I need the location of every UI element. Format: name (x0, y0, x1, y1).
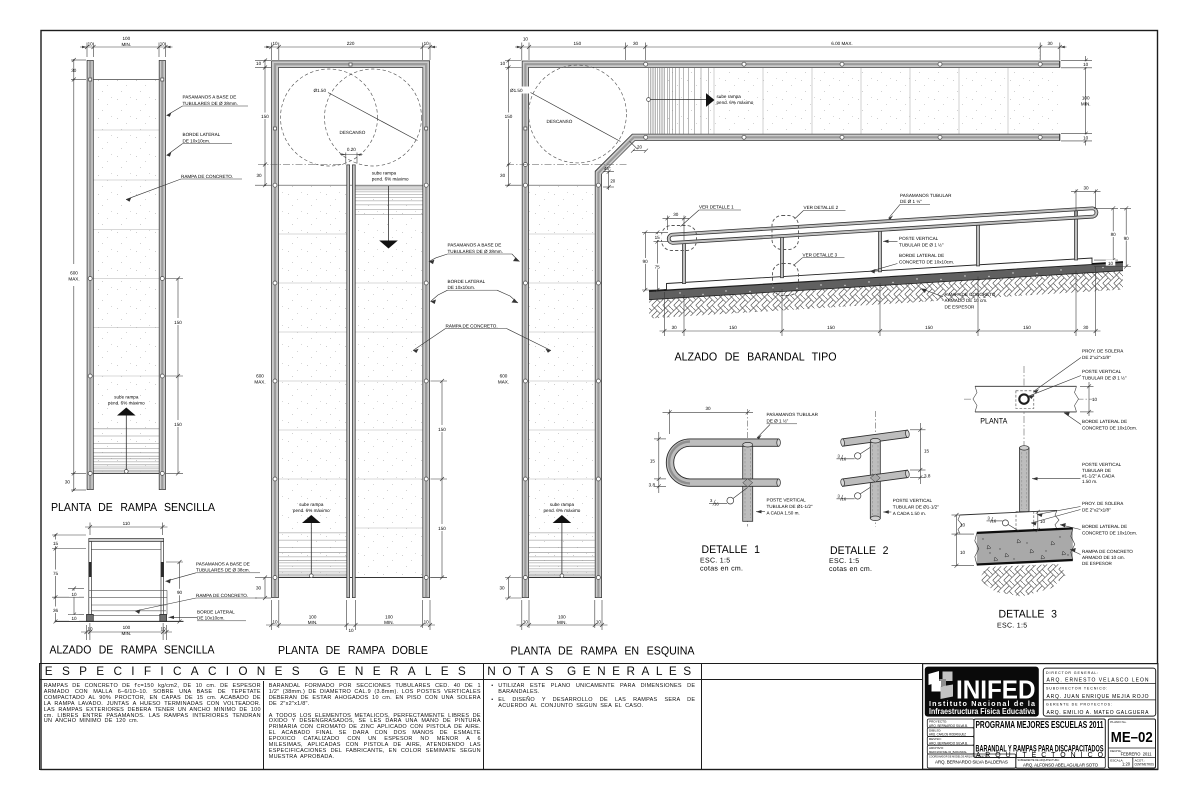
svg-text:10: 10 (71, 592, 77, 597)
svg-text:PASAMANOS A BASE DE: PASAMANOS A BASE DE (196, 561, 250, 566)
svg-text:CONCRETO DE 10x10cm.: CONCRETO DE 10x10cm. (899, 259, 954, 264)
svg-text:75: 75 (655, 265, 661, 270)
svg-text:10: 10 (71, 616, 77, 621)
svg-text:MIN.: MIN. (308, 620, 318, 625)
svg-text:150: 150 (438, 526, 446, 531)
svg-text:RAMPA DE CONCRETO: RAMPA DE CONCRETO (945, 292, 996, 297)
svg-text:MAX.: MAX. (254, 380, 265, 385)
svg-text:45°: 45° (604, 166, 611, 171)
svg-text:Ø1.50: Ø1.50 (314, 88, 327, 93)
svg-text:DESCANSO: DESCANSO (340, 130, 366, 135)
svg-text:10: 10 (523, 619, 529, 624)
svg-text:150: 150 (1023, 325, 1031, 330)
svg-text:MIN.: MIN. (122, 631, 132, 636)
svg-text:30: 30 (256, 585, 262, 590)
svg-text:220: 220 (347, 41, 355, 46)
svg-text:10: 10 (523, 37, 529, 42)
svg-text:TUBULAR DE Ø 1 ½": TUBULAR DE Ø 1 ½" (899, 243, 944, 248)
svg-text:1.50 m.: 1.50 m. (1082, 479, 1097, 484)
svg-text:10: 10 (424, 41, 430, 46)
svg-text:ARQ. JUAN ENRIQUE MEJIA ROJO: ARQ. JUAN ENRIQUE MEJIA ROJO (1046, 694, 1148, 700)
svg-text:ALZADO DE RAMPA SENCILLA: ALZADO DE RAMPA SENCILLA (50, 644, 215, 657)
svg-text:Infraestructura Física Educati: Infraestructura Física Educativa (929, 707, 1036, 716)
svg-text:CONCRETO DE 10x10cm.: CONCRETO DE 10x10cm. (1082, 425, 1137, 430)
svg-text:VER DETALLE 3: VER DETALLE 3 (803, 252, 838, 257)
svg-text:SUBDIRECTOR TECNICO:: SUBDIRECTOR TECNICO: (1046, 686, 1108, 690)
svg-text:3.8: 3.8 (649, 483, 656, 488)
svg-text:90: 90 (1124, 236, 1130, 241)
svg-text:10: 10 (960, 523, 966, 528)
svg-text:1:20: 1:20 (1122, 761, 1131, 766)
svg-text:3: 3 (838, 493, 841, 498)
svg-text:POSTE VERTICAL: POSTE VERTICAL (893, 498, 933, 503)
svg-text:30: 30 (1083, 186, 1089, 191)
svg-text:TUBULAR DE Ø 1 ½": TUBULAR DE Ø 1 ½" (1082, 375, 1127, 380)
svg-text:TUBULARES DE Ø 38mm.: TUBULARES DE Ø 38mm. (448, 249, 503, 254)
svg-text:100: 100 (309, 614, 317, 619)
svg-text:DE Ø 1 ½": DE Ø 1 ½" (900, 199, 922, 204)
svg-text:sube rampa: sube rampa (550, 502, 575, 507)
svg-text:ARMADO DE 10 cm.: ARMADO DE 10 cm. (945, 298, 988, 303)
svg-text:DETALLE 1: DETALLE 1 (702, 544, 761, 556)
svg-text:BORDE LATERAL DE: BORDE LATERAL DE (1082, 524, 1127, 529)
svg-text:15: 15 (53, 541, 59, 546)
svg-text:30: 30 (1083, 325, 1089, 330)
svg-text:PLANO No.: PLANO No. (1110, 720, 1126, 724)
svg-text:30: 30 (672, 325, 678, 330)
svg-text:PLANTA DE RAMPA SENCILLA: PLANTA DE RAMPA SENCILLA (51, 501, 215, 514)
svg-text:pend. 6% máximo: pend. 6% máximo (108, 401, 145, 406)
svg-text:150: 150 (827, 325, 835, 330)
svg-text:BORDE LATERAL: BORDE LATERAL (183, 132, 221, 137)
svg-text:PLANTA: PLANTA (980, 416, 1008, 425)
svg-text:10: 10 (500, 61, 506, 66)
svg-text:10: 10 (256, 61, 262, 66)
svg-text:sube rampa: sube rampa (372, 171, 397, 176)
svg-text:sube rampa: sube rampa (299, 502, 324, 507)
svg-text:pend. 6% máximo: pend. 6% máximo (544, 508, 581, 513)
svg-text:MAX.: MAX. (68, 277, 79, 282)
svg-text:DESCANSO: DESCANSO (547, 119, 573, 124)
svg-text:10: 10 (272, 619, 278, 624)
svg-text:ME–02: ME–02 (1110, 730, 1152, 746)
svg-text:10: 10 (87, 627, 93, 632)
svg-text:RAMPA DE CONCRETO.: RAMPA DE CONCRETO. (196, 593, 248, 598)
svg-text:ARQ. BERNARDO SILVA BALDERAS: ARQ. BERNARDO SILVA BALDERAS (935, 760, 1008, 765)
svg-text:VER DETALLE 1: VER DETALLE 1 (699, 205, 734, 210)
svg-text:16: 16 (714, 501, 719, 506)
svg-text:90: 90 (177, 590, 183, 595)
svg-text:MEDC2011\ME-02_BARANDAL: MEDC2011\ME-02_BARANDAL (929, 750, 967, 754)
svg-text:GERENTE DE PROYECTOS:: GERENTE DE PROYECTOS: (1046, 703, 1113, 707)
svg-text:RAMPA DE CONCRETO.: RAMPA DE CONCRETO. (446, 323, 498, 328)
svg-text:150: 150 (174, 422, 182, 427)
svg-text:CENTIMETROS: CENTIMETROS (1134, 762, 1154, 767)
svg-text:30: 30 (705, 406, 711, 411)
svg-text:PASAMANOS TUBULAR: PASAMANOS TUBULAR (767, 412, 819, 417)
svg-text:10: 10 (1092, 397, 1098, 402)
svg-text:POSTE VERTICAL: POSTE VERTICAL (1082, 369, 1122, 374)
svg-text:DE Ø 1 ½": DE Ø 1 ½" (767, 419, 789, 424)
svg-text:150: 150 (505, 114, 513, 119)
svg-text:75: 75 (53, 571, 59, 576)
svg-text:DIRECTOR GENERAL:: DIRECTOR GENERAL: (1046, 671, 1099, 675)
svg-text:pend. 6% máximo: pend. 6% máximo (293, 508, 330, 513)
svg-text:3.8: 3.8 (924, 474, 931, 479)
svg-text:100: 100 (385, 614, 393, 619)
svg-text:150: 150 (438, 427, 446, 432)
svg-text:PROGRAMA MEJORES ESCUELAS 2011: PROGRAMA MEJORES ESCUELAS 2011 (975, 720, 1103, 731)
svg-text:6.00 MAX.: 6.00 MAX. (831, 41, 852, 46)
svg-text:30: 30 (500, 173, 506, 178)
svg-text:ARQ. CARLOS RODRIGUEZ: ARQ. CARLOS RODRIGUEZ (929, 733, 967, 737)
svg-text:sube rampa: sube rampa (717, 94, 742, 99)
svg-text:600: 600 (500, 374, 508, 379)
svg-text:pend. 6% máximo: pend. 6% máximo (372, 177, 409, 182)
svg-text:100: 100 (122, 36, 130, 41)
svg-text:Ø1.50: Ø1.50 (510, 88, 523, 93)
svg-text:ARQ. ERNESTO VELASCO LEON: ARQ. ERNESTO VELASCO LEON (1046, 678, 1148, 684)
svg-text:PROY. DE SOLERA: PROY. DE SOLERA (1082, 501, 1124, 506)
svg-text:PASAMANOS A BASE DE: PASAMANOS A BASE DE (183, 95, 237, 100)
svg-text:DETALLE 3: DETALLE 3 (999, 609, 1058, 621)
svg-text:600: 600 (256, 374, 264, 379)
svg-text:BORDE LATERAL DE: BORDE LATERAL DE (1082, 419, 1127, 424)
svg-text:TUBULAR DE Ø1-1/2": TUBULAR DE Ø1-1/2" (767, 504, 813, 509)
svg-text:PROY. DE SOLERA: PROY. DE SOLERA (1082, 349, 1124, 354)
svg-text:600: 600 (70, 271, 78, 276)
svg-text:30: 30 (1047, 41, 1053, 46)
svg-text:ESC. 1:5: ESC. 1:5 (700, 558, 730, 565)
svg-text:10: 10 (160, 627, 166, 632)
svg-text:3: 3 (710, 498, 713, 503)
svg-text:30: 30 (499, 585, 505, 590)
svg-text:80: 80 (1111, 232, 1117, 237)
svg-text:A CADA 1.50 m.: A CADA 1.50 m. (767, 511, 800, 516)
svg-text:10: 10 (272, 41, 278, 46)
svg-text:150: 150 (729, 325, 737, 330)
svg-text:ARQ. BERNARDO SILVA B.: ARQ. BERNARDO SILVA B. (929, 724, 968, 728)
svg-text:DE 10x10cm.: DE 10x10cm. (183, 138, 211, 143)
svg-text:15: 15 (650, 459, 656, 464)
svg-text:FEBRERO 2011: FEBRERO 2011 (1120, 752, 1152, 757)
svg-text:cotas en cm.: cotas en cm. (700, 566, 743, 573)
svg-text:DE 2"x2"x1/8": DE 2"x2"x1/8" (1082, 507, 1111, 512)
svg-text:DE ESPESOR: DE ESPESOR (1082, 561, 1113, 566)
svg-text:BORDE LATERAL: BORDE LATERAL (197, 609, 235, 614)
svg-text:PASAMANOS A BASE DE: PASAMANOS A BASE DE (448, 243, 502, 248)
svg-text:sube rampa: sube rampa (114, 395, 139, 400)
svg-text:RAMPA DE CONCRETO.: RAMPA DE CONCRETO. (181, 174, 233, 179)
svg-text:100: 100 (123, 625, 131, 630)
svg-text:VER DETALLE 2: VER DETALLE 2 (804, 205, 839, 210)
svg-text:20: 20 (610, 178, 615, 183)
svg-text:0.20: 0.20 (347, 147, 356, 152)
svg-text:100: 100 (1082, 96, 1090, 101)
svg-text:10: 10 (424, 619, 430, 624)
svg-text:TUBULAR DE: TUBULAR DE (1082, 468, 1111, 473)
svg-text:110: 110 (123, 521, 131, 526)
svg-text:MIN.: MIN. (1081, 101, 1091, 106)
svg-text:POSTE VERTICAL: POSTE VERTICAL (899, 236, 939, 241)
svg-text:POSTE VERTICAL: POSTE VERTICAL (1082, 462, 1122, 467)
svg-text:ARQ. ALFONSO ABEL AGUILAR SOTO: ARQ. ALFONSO ABEL AGUILAR SOTO (1023, 762, 1099, 767)
svg-text:15: 15 (924, 449, 930, 454)
svg-text:POSTE VERTICAL: POSTE VERTICAL (767, 498, 807, 503)
svg-text:BORDE LATERAL DE: BORDE LATERAL DE (899, 253, 944, 258)
svg-text:ARMADO DE 10 cm.: ARMADO DE 10 cm. (1082, 555, 1125, 560)
svg-text:DE 2"x2"x1/8": DE 2"x2"x1/8" (1082, 355, 1111, 360)
svg-text:10: 10 (1083, 135, 1089, 140)
svg-text:ARQ. EMILIO A. MATEO GALGUERA: ARQ. EMILIO A. MATEO GALGUERA (1046, 710, 1149, 716)
svg-text:TUBULARES DE Ø 38cm.: TUBULARES DE Ø 38cm. (196, 568, 250, 573)
svg-text:MIN.: MIN. (557, 620, 567, 625)
svg-text:RAMPA DE CONCRETO: RAMPA DE CONCRETO (1082, 549, 1133, 554)
svg-text:MAX.: MAX. (498, 380, 509, 385)
svg-text:150: 150 (573, 41, 581, 46)
svg-text:CONCRETO DE 10x10cm.: CONCRETO DE 10x10cm. (1082, 531, 1137, 536)
svg-text:PASAMANOS TUBULAR: PASAMANOS TUBULAR (900, 193, 952, 198)
svg-text:16: 16 (842, 497, 847, 502)
svg-text:100: 100 (558, 614, 566, 619)
svg-text:10: 10 (960, 550, 966, 555)
svg-text:DE 10x10cm.: DE 10x10cm. (197, 616, 225, 621)
svg-text:30: 30 (633, 41, 639, 46)
svg-text:A CADA 1.50 m.: A CADA 1.50 m. (893, 511, 926, 516)
svg-text:MIN.: MIN. (121, 42, 131, 47)
svg-text:36: 36 (53, 608, 59, 613)
svg-text:10: 10 (348, 628, 354, 633)
svg-text:DE 10x10cm.: DE 10x10cm. (448, 285, 476, 290)
svg-text:ESC. 1:5: ESC. 1:5 (997, 623, 1027, 630)
svg-text:10: 10 (160, 41, 166, 46)
svg-text:3: 3 (838, 453, 841, 458)
svg-text:90: 90 (643, 259, 649, 264)
svg-text:10: 10 (596, 619, 602, 624)
svg-text:20: 20 (637, 145, 642, 150)
svg-text:DE ESPESOR: DE ESPESOR (945, 305, 976, 310)
svg-text:ALZADO DE BARANDAL TIPO: ALZADO DE BARANDAL TIPO (675, 351, 837, 364)
svg-text:10: 10 (1083, 62, 1089, 67)
svg-text:16: 16 (992, 519, 997, 524)
svg-text:MIN.: MIN. (384, 620, 394, 625)
svg-text:ESC. 1:5: ESC. 1:5 (829, 558, 859, 565)
svg-text:DETALLE 2: DETALLE 2 (830, 545, 889, 557)
svg-text:TUBULAR DE Ø1-1/2": TUBULAR DE Ø1-1/2" (893, 504, 939, 509)
svg-text:10: 10 (88, 41, 94, 46)
svg-text:cotas en cm.: cotas en cm. (829, 566, 872, 573)
svg-text:10: 10 (1108, 261, 1114, 266)
svg-text:150: 150 (261, 114, 269, 119)
svg-text:30: 30 (673, 212, 679, 217)
svg-text:ARQ. BERNARDO SILVA B.: ARQ. BERNARDO SILVA B. (929, 741, 968, 745)
svg-text:BORDE LATERAL: BORDE LATERAL (448, 279, 486, 284)
svg-text:30: 30 (65, 479, 71, 484)
svg-text:PLANTA DE RAMPA EN ESQUINA: PLANTA DE RAMPA EN ESQUINA (511, 645, 695, 658)
svg-text:15: 15 (655, 235, 661, 240)
svg-text:16: 16 (842, 457, 847, 462)
svg-text:30: 30 (71, 68, 77, 73)
svg-text:30: 30 (256, 173, 262, 178)
svg-text:pend. 6% máximo: pend. 6% máximo (717, 100, 754, 105)
svg-text:150: 150 (925, 325, 933, 330)
svg-text:PLANTA DE RAMPA DOBLE: PLANTA DE RAMPA DOBLE (278, 644, 428, 657)
svg-text:150: 150 (174, 320, 182, 325)
svg-text:#1-1/2" A CADA: #1-1/2" A CADA (1082, 473, 1115, 478)
svg-text:TUBULARES DE Ø 38mm.: TUBULARES DE Ø 38mm. (183, 101, 238, 106)
